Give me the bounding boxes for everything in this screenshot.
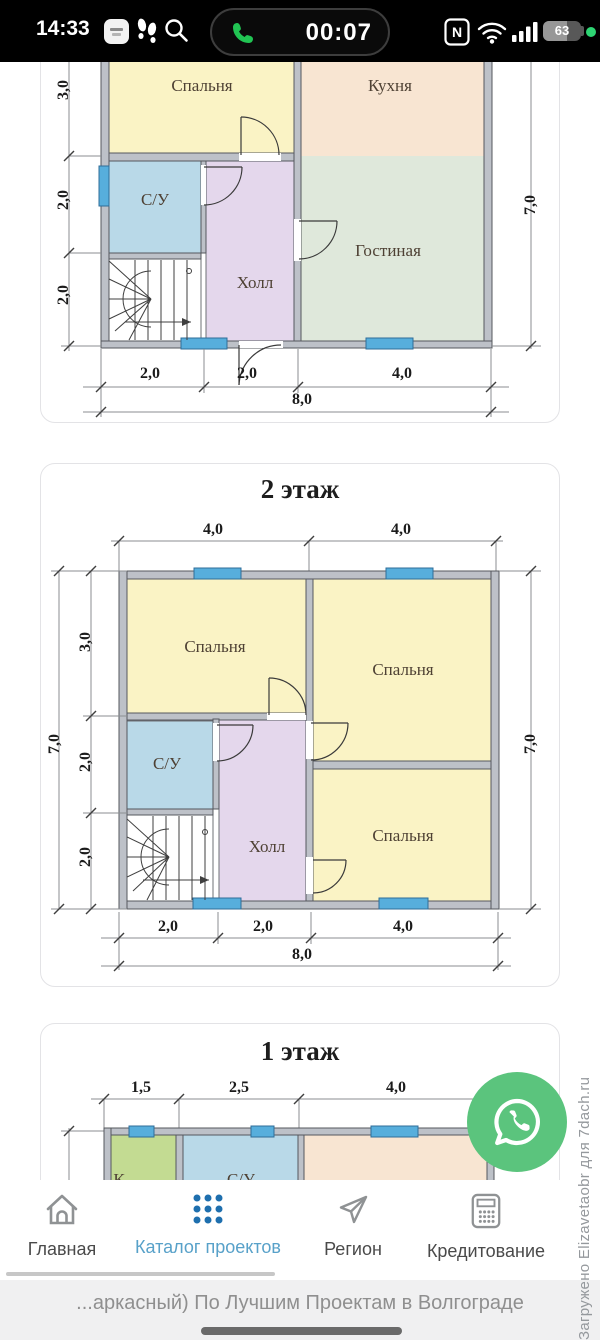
grid-dots-icon [191,1192,225,1226]
dim-top-1: 4,0 [203,521,223,538]
nav-label-home: Главная [12,1239,112,1260]
svg-text:N: N [452,24,462,40]
dim-bottom-2: 2,0 [253,918,273,935]
dim-bottom-1: 2,0 [158,918,178,935]
nfc-icon: N [444,18,470,46]
nav-label-catalog: Каталог проектов [123,1237,293,1258]
send-arrow-icon [335,1192,371,1228]
dim-bottom-total: 8,0 [292,946,312,963]
dim-left-2b: 2,0 [55,285,72,305]
nav-scroll-indicator [6,1272,275,1276]
dim-left-3: 3,0 [55,80,72,100]
footer-marquee-text: ...аркасный) По Лучшим Проектам в Волгог… [0,1292,600,1315]
dim-top-3: 4,0 [386,1079,406,1096]
nav-item-region[interactable]: Регион [303,1192,403,1260]
watermark-text: Загружено Elizavetaobr для 7dach.ru [576,1038,598,1340]
dim-bottom-2: 2,0 [237,365,257,382]
room-label-hall: Холл [249,837,286,856]
dim-left-3: 3,0 [77,632,94,652]
dim-top-2: 2,5 [229,1079,249,1096]
dimensions-top: 4,0 4,0 [111,521,503,571]
room-label-kitchen: Кухня [368,76,412,95]
battery-nub [581,26,584,36]
footer-banner[interactable]: ...аркасный) По Лучшим Проектам в Волгог… [0,1280,600,1340]
room-label-bedroom-br: Спальня [372,826,433,845]
ongoing-call-pill[interactable]: 00:07 [210,8,390,56]
home-icon [44,1192,80,1228]
phone-screen: 3,0 2,0 2,0 7,0 2,0 2,0 4,0 [0,0,600,1340]
dim-top-1: 1,5 [131,1079,151,1096]
dim-left-2a: 2,0 [77,752,94,772]
bottom-navigation: Главная Каталог проектов Регион [0,1180,600,1280]
phone-icon [230,20,256,46]
room-label-living: Гостиная [355,241,421,260]
floor1-title: 1 этаж [261,1036,340,1066]
dim-top-2: 4,0 [391,521,411,538]
dim-bottom-1: 2,0 [140,365,160,382]
room-label-bedroom: Спальня [171,76,232,95]
dim-right-total: 7,0 [522,195,539,215]
floorplan-top-drawing: 3,0 2,0 2,0 7,0 2,0 2,0 4,0 [41,31,559,422]
floorplan-floor2-drawing: 2 этаж 4,0 4,0 [41,464,559,986]
status-bar: 14:33 00:07 N [0,0,600,62]
nav-label-region: Регион [303,1239,403,1260]
whatsapp-icon [489,1094,545,1150]
dim-bottom-total: 8,0 [292,391,312,408]
dim-right-total: 7,0 [522,734,539,754]
floor2-title: 2 этаж [261,474,340,504]
nav-item-catalog[interactable]: Каталог проектов [123,1192,293,1258]
dim-left-2b: 2,0 [77,847,94,867]
room-label-bathroom: С/У [141,190,170,209]
footsteps-icon [136,17,158,44]
whatsapp-button[interactable] [467,1072,567,1172]
clock: 14:33 [36,17,90,41]
nav-item-home[interactable]: Главная [12,1192,112,1260]
notification-app-icon [104,19,129,44]
battery-indicator: 63 [543,21,581,41]
signal-icon [512,20,538,42]
nav-label-credit: Кредитование [406,1241,566,1262]
gesture-bar[interactable] [201,1327,402,1335]
battery-percent: 63 [543,23,581,38]
room-label-bathroom: С/У [153,754,182,773]
dim-left-total: 7,0 [46,734,63,754]
dim-left-2a: 2,0 [55,190,72,210]
privacy-indicator-dot [586,27,596,37]
floorplan-card-top[interactable]: 3,0 2,0 2,0 7,0 2,0 2,0 4,0 [40,30,560,423]
dim-bottom-3: 4,0 [392,365,412,382]
room-label-bedroom-r: Спальня [372,660,433,679]
nav-item-credit[interactable]: Кредитование [406,1192,566,1262]
room-label-hall: Холл [237,273,274,292]
floorplan-card-floor2[interactable]: 2 этаж 4,0 4,0 [40,463,560,987]
call-timer: 00:07 [306,19,372,47]
room-label-bedroom-tl: Спальня [184,637,245,656]
dim-bottom-3: 4,0 [393,918,413,935]
calculator-icon [469,1192,503,1230]
wifi-icon [476,19,508,45]
search-icon[interactable] [163,17,190,44]
